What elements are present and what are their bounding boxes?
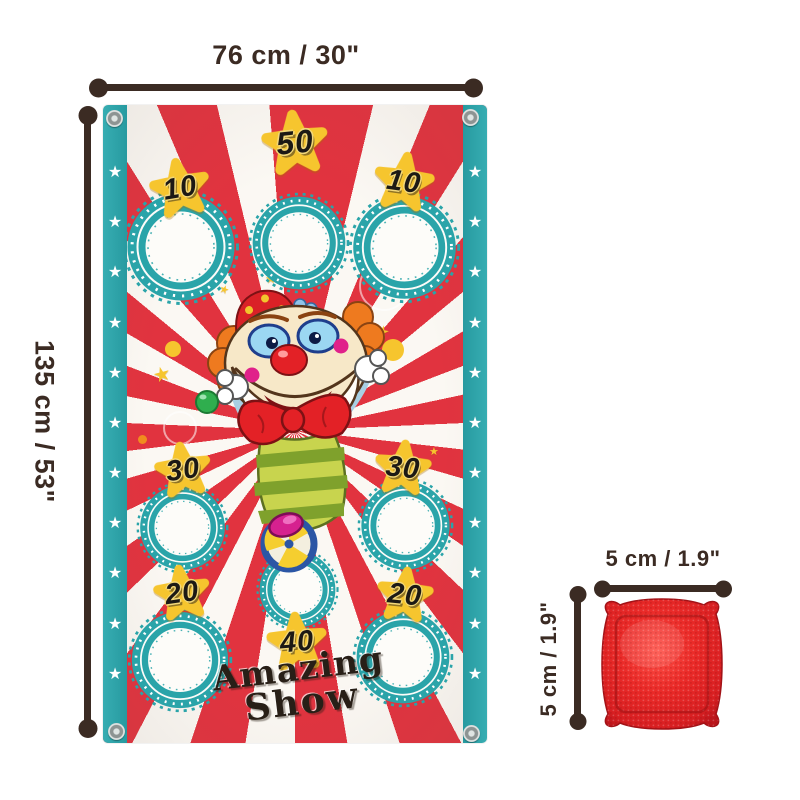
grommet-icon bbox=[462, 109, 479, 126]
left-border-strip: ★★★★★★★★★★★ bbox=[103, 105, 127, 743]
confetti-star-icon: ★ bbox=[151, 363, 174, 387]
dimension-endpoint-dot bbox=[78, 106, 97, 125]
strip-star-icon: ★ bbox=[468, 316, 482, 332]
product-dimension-image: 76 cm / 30" 135 cm / 53" ★★★★★★★★★★★ ★★★… bbox=[0, 0, 800, 800]
strip-star-icon: ★ bbox=[468, 516, 482, 532]
strip-star-icon: ★ bbox=[468, 416, 482, 432]
banner-height-dimension-line bbox=[84, 112, 91, 732]
score-value: 20 bbox=[352, 558, 458, 630]
strip-star-icon: ★ bbox=[108, 165, 122, 181]
banner-width-label: 76 cm / 30" bbox=[136, 40, 436, 71]
score-value: 30 bbox=[350, 431, 456, 503]
grommet-icon bbox=[108, 723, 125, 740]
carnival-toss-banner: ★★★★★★★★★★★ ★★★★★★★★★★★ ★ ★ ★ ★ ★ bbox=[103, 105, 487, 743]
strip-star-icon: ★ bbox=[108, 265, 122, 281]
bag-width-dimension-line bbox=[600, 585, 726, 592]
toss-hole-top-center bbox=[247, 191, 351, 295]
dimension-endpoint-dot bbox=[569, 713, 586, 730]
bean-bag bbox=[592, 594, 732, 734]
right-border-strip: ★★★★★★★★★★★ bbox=[463, 105, 487, 743]
banner-width-dimension-line bbox=[95, 84, 477, 91]
strip-star-icon: ★ bbox=[108, 466, 122, 482]
grommet-icon bbox=[106, 110, 123, 127]
bag-height-dimension-line bbox=[574, 592, 581, 724]
strip-star-icon: ★ bbox=[468, 566, 482, 582]
strip-star-icon: ★ bbox=[108, 366, 122, 382]
strip-star-icon: ★ bbox=[468, 667, 482, 683]
score-star-middle-right: 30 bbox=[350, 431, 456, 503]
score-value: 50 bbox=[237, 105, 354, 182]
strip-star-icon: ★ bbox=[468, 215, 482, 231]
strip-star-icon: ★ bbox=[108, 516, 122, 532]
hole-ring-icon bbox=[247, 191, 351, 295]
strip-star-icon: ★ bbox=[468, 265, 482, 281]
dimension-endpoint-dot bbox=[569, 586, 586, 603]
strip-star-icon: ★ bbox=[468, 165, 482, 181]
clown-illustration bbox=[191, 283, 403, 575]
strip-star-icon: ★ bbox=[108, 215, 122, 231]
confetti-dot bbox=[165, 341, 181, 357]
banner-height-label: 135 cm / 53" bbox=[29, 292, 60, 552]
strip-star-icon: ★ bbox=[108, 617, 122, 633]
dimension-endpoint-dot bbox=[89, 78, 108, 97]
dimension-endpoint-dot bbox=[78, 719, 97, 738]
dimension-endpoint-dot bbox=[464, 78, 483, 97]
bag-height-label: 5 cm / 1.9" bbox=[536, 559, 562, 759]
strip-star-icon: ★ bbox=[108, 566, 122, 582]
score-star-top-center: 50 bbox=[237, 105, 354, 182]
grommet-icon bbox=[463, 725, 480, 742]
strip-star-icon: ★ bbox=[468, 617, 482, 633]
strip-star-icon: ★ bbox=[468, 466, 482, 482]
strip-star-icon: ★ bbox=[468, 366, 482, 382]
bag-width-label: 5 cm / 1.9" bbox=[563, 546, 763, 572]
score-star-bottom-right: 20 bbox=[352, 558, 458, 630]
strip-star-icon: ★ bbox=[108, 667, 122, 683]
strip-star-icon: ★ bbox=[108, 316, 122, 332]
strip-star-icon: ★ bbox=[108, 416, 122, 432]
